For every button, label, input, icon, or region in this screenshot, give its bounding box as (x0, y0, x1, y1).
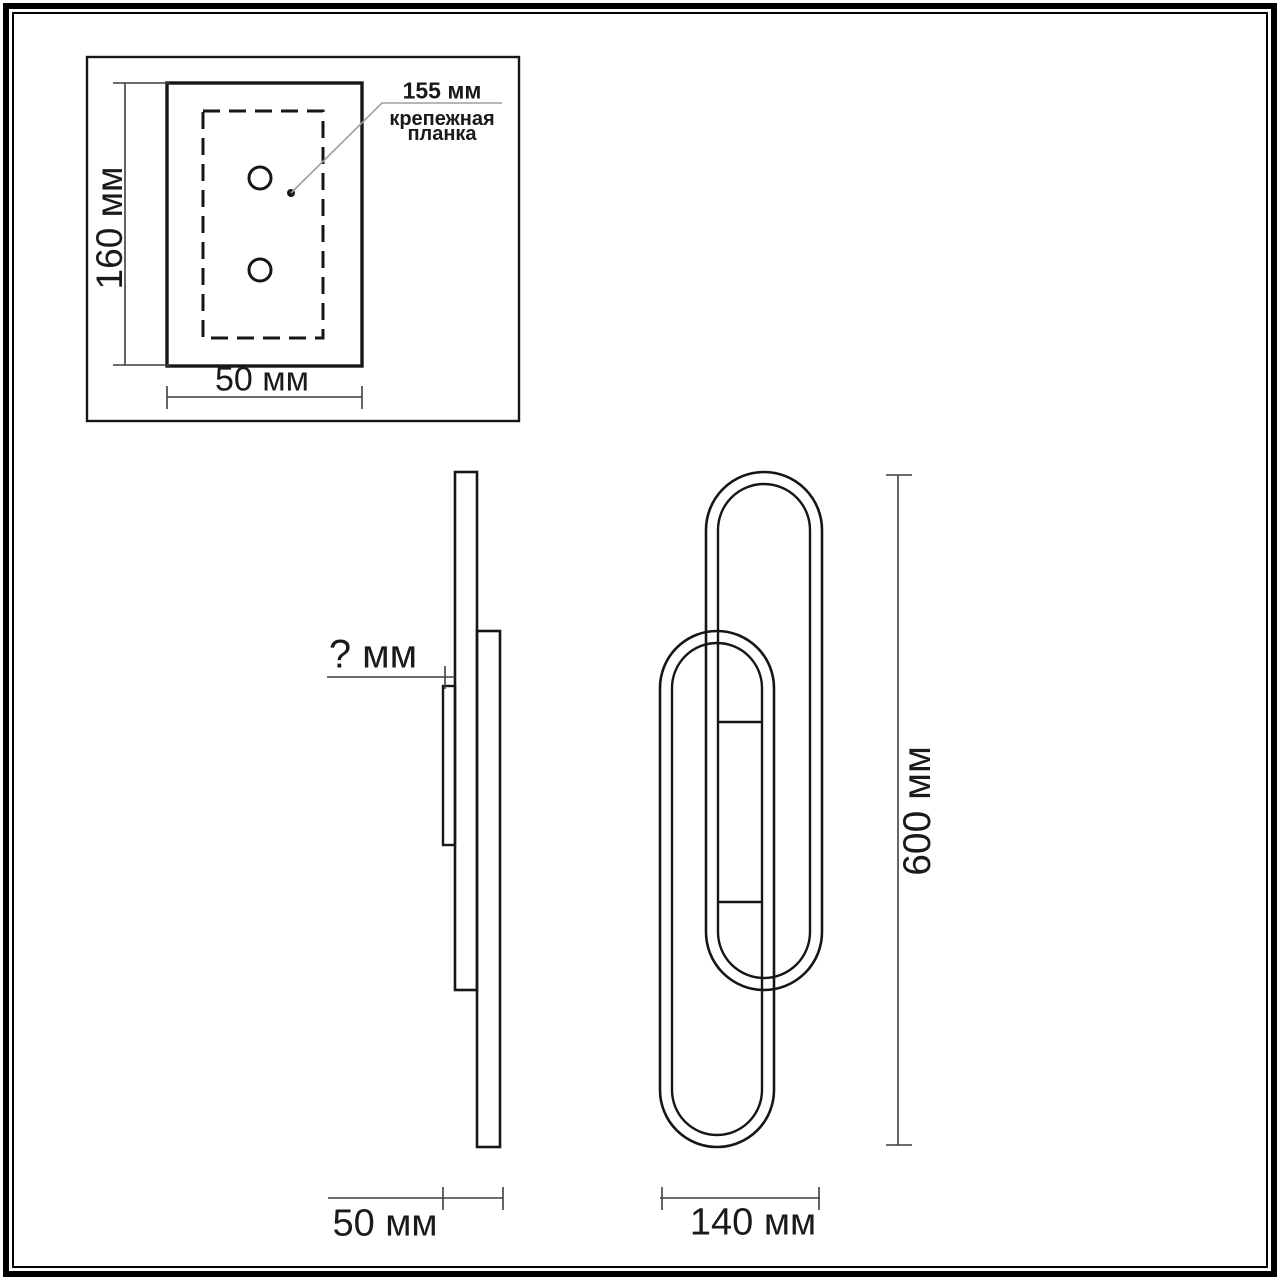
upper-loop-outer (706, 472, 822, 990)
screw-hole-bottom (249, 259, 271, 281)
side-depth-unknown-label: ? мм (329, 633, 417, 678)
side-mount-plate (443, 686, 455, 845)
mount-plate-outline (167, 83, 362, 366)
front-height-label: 600 мм (896, 746, 940, 876)
technical-drawing-canvas (0, 0, 1280, 1280)
mount-bar-label: крепежная планка (389, 112, 494, 142)
upper-loop-inner (718, 484, 810, 978)
side-view (327, 472, 503, 1210)
screw-hole-top (249, 167, 271, 189)
side-back-panel (477, 631, 500, 1147)
inset-height-label: 160 мм (89, 167, 131, 290)
front-width-label: 140 мм (690, 1202, 816, 1245)
dimension-drawing-page: 160 мм 50 мм 155 мм крепежная планка ? м… (0, 0, 1280, 1280)
front-view (660, 472, 912, 1210)
inset-width-label: 50 мм (215, 361, 309, 400)
mount-bracket-dashed-outline (203, 111, 323, 338)
hole-pitch-label: 155 мм (403, 78, 482, 105)
side-depth-label: 50 мм (332, 1203, 437, 1246)
side-front-panel (455, 472, 477, 990)
